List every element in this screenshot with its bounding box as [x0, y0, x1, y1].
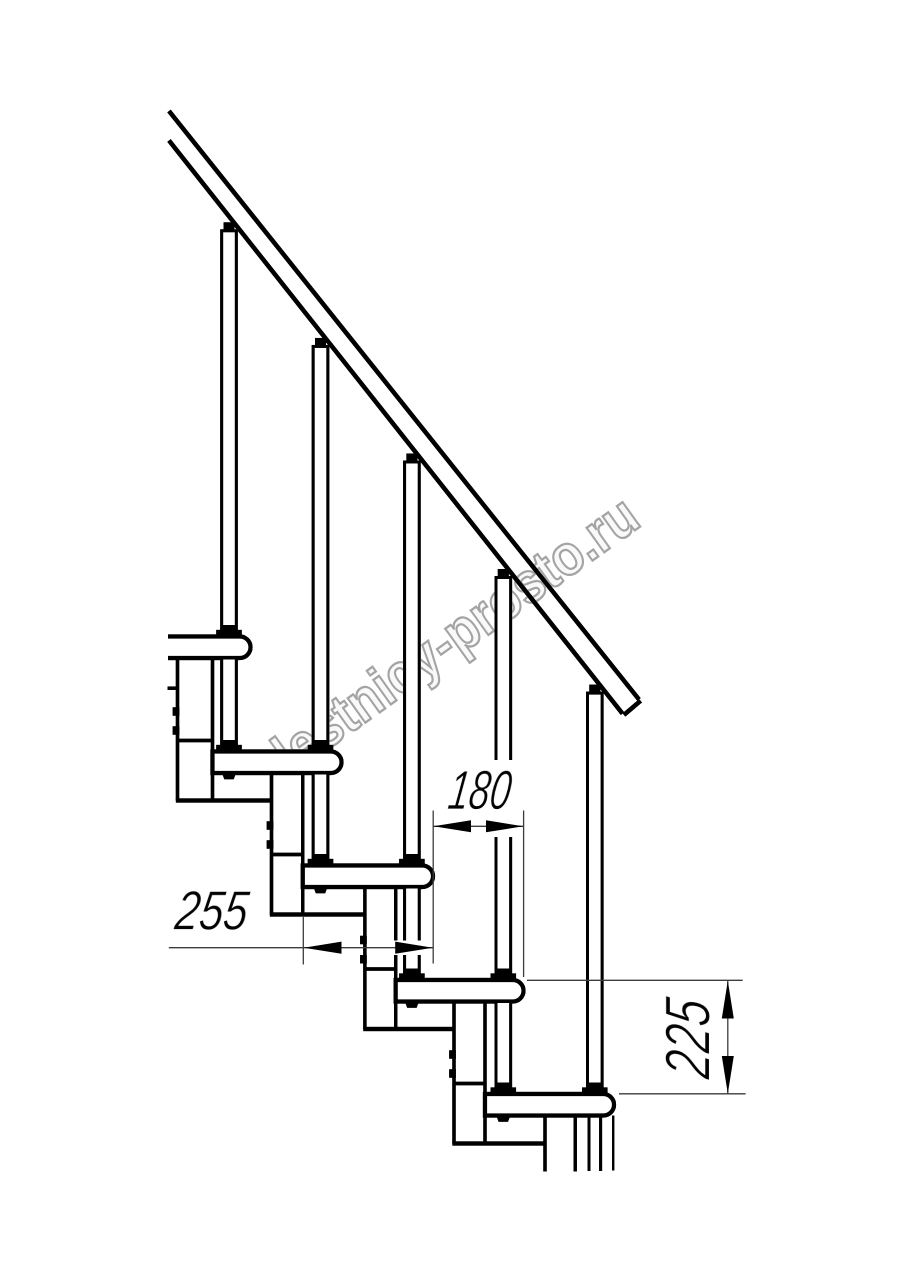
- svg-text:255: 255: [171, 880, 253, 942]
- svg-text:225: 225: [654, 994, 724, 1083]
- svg-text:180: 180: [445, 759, 516, 821]
